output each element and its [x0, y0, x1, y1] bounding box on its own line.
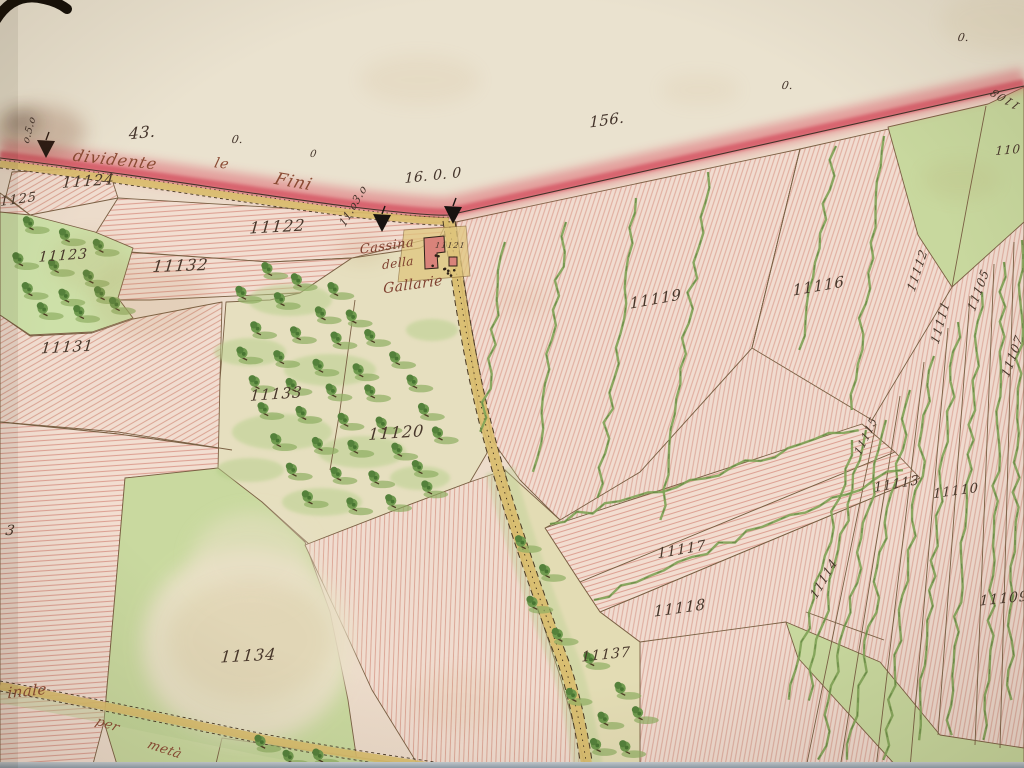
photo-artifacts — [0, 0, 1024, 768]
map-canvas: 1112411125111231112211132111311113311120… — [0, 0, 1024, 768]
cadastral-map-photo: 1112411125111231112211132111311113311120… — [0, 0, 1024, 768]
